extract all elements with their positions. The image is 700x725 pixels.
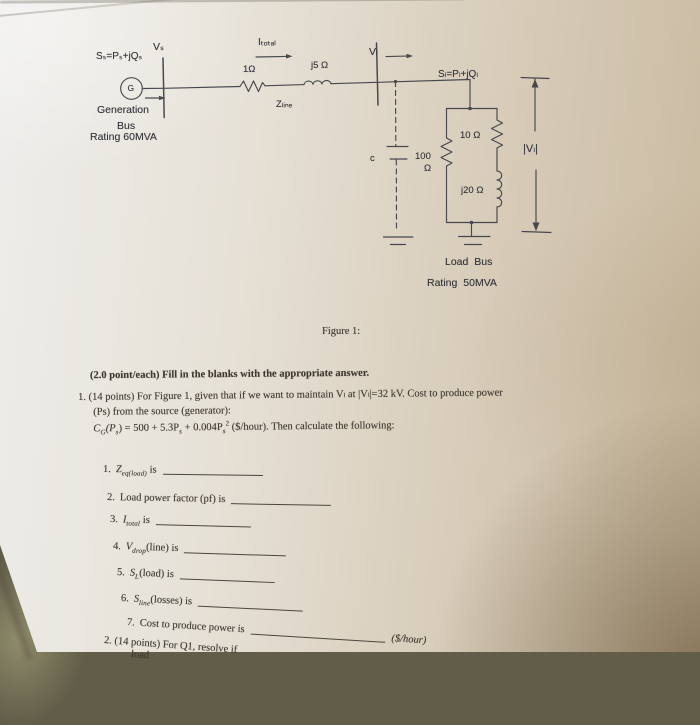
item-subscript: drop bbox=[132, 547, 146, 555]
formula-part: C bbox=[93, 423, 100, 434]
capacitor-symbol bbox=[387, 147, 408, 160]
label-load-voltage: Vₗ bbox=[369, 46, 378, 58]
answer-blank-5[interactable] bbox=[180, 568, 275, 583]
question-1-intro: 1. (14 points) For Figure 1, given that … bbox=[78, 387, 503, 437]
label-current-total: Iₜₒₜₐₗ bbox=[258, 37, 276, 48]
formula-part: ($/hour). Then calculate the following: bbox=[229, 420, 395, 433]
load-inductor-coil bbox=[497, 171, 502, 207]
answer-blank-3[interactable] bbox=[156, 514, 251, 527]
answer-blank-4[interactable] bbox=[184, 542, 286, 556]
label-shunt-resistor-value: 100 bbox=[415, 151, 431, 162]
formula-sub: s bbox=[223, 427, 226, 435]
label-line-inductor: j5 Ω bbox=[311, 60, 328, 71]
line-resistor-zigzag bbox=[240, 81, 265, 92]
item-post: is bbox=[147, 465, 157, 476]
label-source-voltage: Vₛ bbox=[153, 41, 164, 53]
label-generation-bus-1: Generation bbox=[97, 104, 149, 116]
junction-dot bbox=[468, 107, 472, 111]
blank-item-1: 1.Zeq(load) is bbox=[103, 463, 263, 479]
shunt-resistor-zigzag bbox=[441, 138, 452, 166]
junction-dot bbox=[394, 80, 397, 83]
label-load-bus-2: Rating 50MVA bbox=[427, 277, 497, 289]
question-1-line-1: 1. (14 points) For Figure 1, given that … bbox=[78, 388, 503, 403]
item-post: (losses) is bbox=[150, 594, 192, 607]
item-subscript: total bbox=[126, 519, 140, 527]
item-number: 7. bbox=[127, 617, 136, 628]
item-post: (load) is bbox=[139, 568, 174, 580]
item-subscript: eq(load) bbox=[122, 469, 147, 477]
label-generation-bus-2: Bus bbox=[117, 120, 135, 132]
question-1-line-2: (Ps) from the source (generator): bbox=[93, 402, 503, 417]
current-total-arrow bbox=[256, 54, 293, 59]
label-voltage-magnitude: |Vₗ| bbox=[523, 142, 538, 155]
item-unit: ($/hour) bbox=[391, 633, 427, 646]
ground-symbol-load bbox=[459, 223, 491, 245]
label-line-impedance: Zₗᵢₙₑ bbox=[276, 99, 292, 110]
ground-symbol-capacitor bbox=[384, 237, 414, 245]
item-lead: Load power factor (pf) is bbox=[120, 492, 226, 505]
item-number: 4. bbox=[113, 541, 121, 552]
generator-letter: G bbox=[128, 83, 135, 93]
label-capacitor: c bbox=[370, 153, 375, 164]
circuit-diagram bbox=[0, 0, 700, 310]
voltage-magnitude-marker bbox=[521, 78, 551, 233]
label-series-resistor: 10 Ω bbox=[460, 130, 480, 141]
formula-part: ) = 500 + 5.3P bbox=[118, 422, 179, 434]
answer-blank-2[interactable] bbox=[231, 493, 331, 506]
fragment-text: load bbox=[131, 649, 150, 661]
label-load-power: Sₗ=Pₗ+jQₗ bbox=[438, 69, 478, 80]
item-number: 2. bbox=[107, 492, 115, 503]
figure-caption: Figure 1: bbox=[322, 326, 360, 337]
item-number: 5. bbox=[117, 567, 125, 578]
formula-part: + 0.004P bbox=[182, 422, 223, 433]
series-resistor-zigzag bbox=[492, 120, 503, 148]
item-number: 6. bbox=[121, 593, 129, 604]
load-flow-arrow bbox=[386, 54, 413, 59]
line-inductor-coil bbox=[304, 81, 331, 85]
item-number: 3. bbox=[110, 514, 118, 525]
generator-flow-arrow bbox=[146, 96, 166, 101]
label-source-power: Sₛ=Pₛ+jQₛ bbox=[96, 51, 142, 62]
label-line-resistor: 1Ω bbox=[243, 64, 255, 75]
item-post: is bbox=[140, 515, 150, 526]
wire bbox=[164, 87, 240, 89]
item-subscript: line bbox=[139, 599, 151, 608]
formula-part: (P bbox=[106, 423, 116, 434]
item-post: (line) is bbox=[146, 542, 179, 554]
label-generation-bus-3: Rating 60MVA bbox=[90, 131, 157, 143]
load-network-box bbox=[441, 109, 503, 223]
answer-blank-1[interactable] bbox=[163, 464, 263, 476]
junction-dot bbox=[470, 221, 474, 225]
label-load-bus-1: Load Bus bbox=[445, 256, 492, 268]
wire bbox=[265, 85, 304, 86]
wire bbox=[331, 80, 470, 109]
label-shunt-resistor-unit: Ω bbox=[424, 163, 431, 174]
label-load-inductor: j20 Ω bbox=[461, 185, 483, 196]
question-2-next-line-fragment: load bbox=[131, 649, 150, 661]
item-number: 1. bbox=[103, 464, 111, 475]
